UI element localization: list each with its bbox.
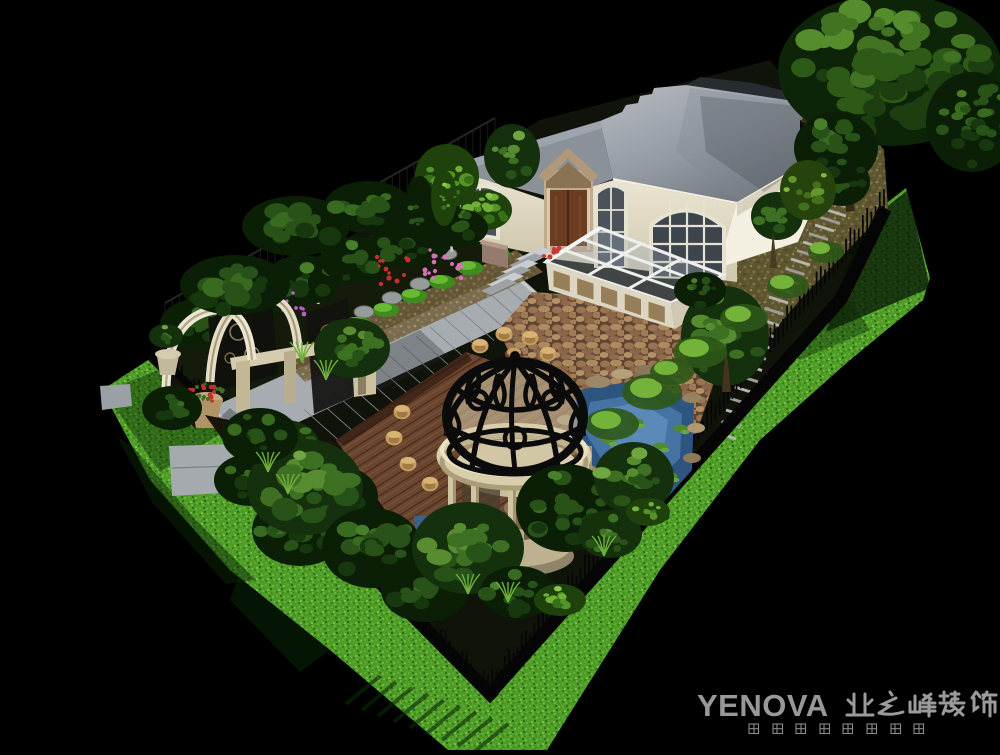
svg-text:YENOVA: YENOVA [697,688,829,723]
